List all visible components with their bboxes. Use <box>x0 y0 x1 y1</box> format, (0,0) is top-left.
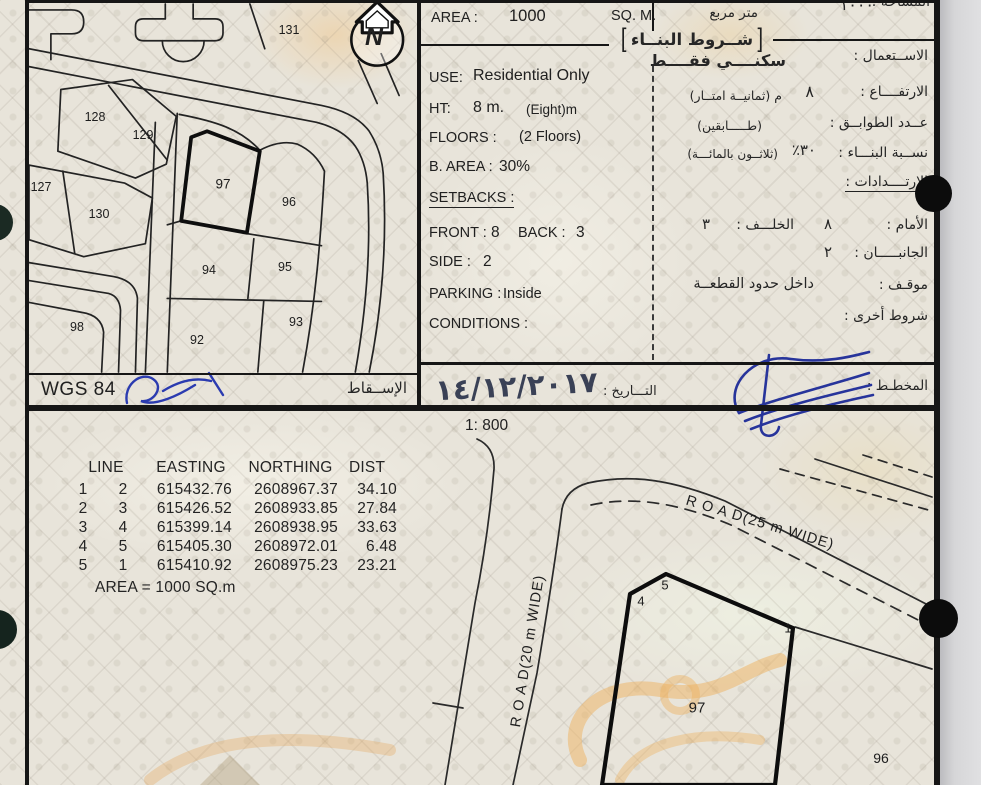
built-area-label: B. AREA : <box>429 159 493 175</box>
front-label-arabic: الأمام : <box>887 217 928 233</box>
header-rule-left <box>421 44 609 46</box>
conditions-header: [ شــروط البنــاء ] <box>607 28 777 51</box>
side-label-arabic: الجانبـــــان : <box>854 245 928 261</box>
map-strip-rule <box>25 373 417 375</box>
height-note-arabic: م (ثمانيــة امتــار) <box>690 88 782 103</box>
height-label: HT: <box>429 101 451 117</box>
datum-strip: WGS 84 الإســقاط <box>29 375 417 405</box>
use-value-arabic: سكنــــي فقــــط <box>650 51 786 70</box>
date-label: التـــاريخ : <box>603 384 657 399</box>
parking-value: Inside <box>503 286 542 302</box>
area-label: AREA : <box>431 10 478 26</box>
building-conditions-panel: AREA : 1000 SQ. M. متر مربع ١٠٠٠ المساحة… <box>421 0 934 362</box>
plot-label-92: 92 <box>190 333 204 347</box>
front-value: 8 <box>491 224 500 242</box>
side-value-arabic: ٢ <box>824 243 832 261</box>
other-conditions-label: CONDITIONS : <box>429 316 528 332</box>
bracket-close: ] <box>758 25 764 55</box>
parking-label-arabic: موقـف : <box>879 277 928 293</box>
height-value-arabic: ٨ <box>805 82 814 101</box>
cadastral-map-panel: 131 128 129 127 130 97 96 94 95 98 92 93… <box>29 3 417 373</box>
border-mid-vertical <box>417 0 421 411</box>
projection-label: الإســقاط <box>347 379 407 397</box>
plot-label-93: 93 <box>289 315 303 329</box>
floors-label-arabic: عــدد الطوابــق : <box>830 115 928 131</box>
parking-value-arabic: داخل حدود القطعــة <box>693 276 814 292</box>
front-label: FRONT : <box>429 225 487 241</box>
plot-label-98: 98 <box>70 320 84 334</box>
punch-hole <box>915 175 952 212</box>
border-left <box>25 0 29 785</box>
back-label-arabic: الخلـــف : <box>736 217 794 233</box>
height-note: (Eight)m <box>526 102 577 117</box>
area-unit: SQ. M. <box>611 8 656 24</box>
site-plan-drawing <box>25 411 934 785</box>
floors-label: FLOORS : <box>429 130 497 146</box>
area-unit-arabic: متر مربع <box>709 5 758 21</box>
header-rule-right <box>773 39 934 41</box>
back-value-arabic: ٣ <box>702 215 710 233</box>
parking-label: PARKING : <box>429 286 501 302</box>
border-mid-horizontal <box>25 405 940 411</box>
built-area-label-arabic: نســبة البنـــاء : <box>838 145 928 161</box>
back-label: BACK : <box>518 225 566 241</box>
plot-label-97: 97 <box>215 177 230 192</box>
site-plot-label-97: 97 <box>689 700 706 717</box>
front-value-arabic: ٨ <box>824 215 832 233</box>
floors-value: (2 Floors) <box>519 129 581 145</box>
site-plan-panel: 1: 800 LINE EASTING NORTHING DIST 126154… <box>25 411 934 785</box>
scan-page-edge <box>940 0 981 785</box>
plot-label-127: 127 <box>31 180 52 194</box>
site-plot-label-96: 96 <box>873 750 889 766</box>
side-value: 2 <box>483 253 492 271</box>
plot-label-131: 131 <box>279 23 300 37</box>
date-strip-rule <box>421 362 934 365</box>
height-label-arabic: الارتفــــاع : <box>860 84 928 100</box>
border-top <box>25 0 940 3</box>
punch-hole <box>919 599 958 638</box>
conditions-header-text: شــروط البنــاء <box>631 30 753 49</box>
datum-label: WGS 84 <box>41 379 116 401</box>
krooki-document: 131 128 129 127 130 97 96 94 95 98 92 93… <box>0 0 981 785</box>
plot-label-130: 130 <box>89 207 110 221</box>
bracket-open: [ <box>621 25 627 55</box>
subject-plot-97-outline <box>602 574 793 785</box>
plot-label-128: 128 <box>85 110 106 124</box>
area-row-divider <box>652 0 654 31</box>
back-value: 3 <box>576 224 585 242</box>
use-label: USE: <box>429 70 463 86</box>
floors-value-arabic: (طـــــابقين) <box>697 118 762 133</box>
handwritten-date: ١٤/١٢/٢٠١٧ <box>434 365 598 407</box>
plot-label-96: 96 <box>282 195 296 209</box>
column-divider-dashed <box>652 66 654 360</box>
built-area-value-arabic: ٣٠٪ <box>792 141 816 159</box>
height-value: 8 m. <box>473 99 504 117</box>
use-label-arabic: الاســتعمال : <box>854 48 928 64</box>
plot-label-95: 95 <box>278 260 292 274</box>
plot-label-94: 94 <box>202 263 216 277</box>
use-value: Residential Only <box>473 67 590 85</box>
punch-hole <box>0 610 17 649</box>
punch-hole <box>0 204 13 241</box>
vertex-label-4: 4 <box>637 594 644 609</box>
vertex-label-1: 1 <box>784 621 791 636</box>
built-area-note-arabic: (ثلاثــون بالمائـــة) <box>687 147 778 161</box>
date-signature-strip: ١٤/١٢/٢٠١٧ التـــاريخ : المخطـط : <box>421 365 934 405</box>
other-conditions-label-arabic: شروط أخرى : <box>844 308 928 324</box>
built-area-value: 30% <box>499 158 530 176</box>
area-value: 1000 <box>509 7 546 26</box>
north-label: N <box>365 23 383 52</box>
vertex-label-5: 5 <box>661 578 668 593</box>
side-label: SIDE : <box>429 254 471 270</box>
plot-label-129: 129 <box>133 128 154 142</box>
setbacks-label: SETBACKS : <box>429 190 514 208</box>
